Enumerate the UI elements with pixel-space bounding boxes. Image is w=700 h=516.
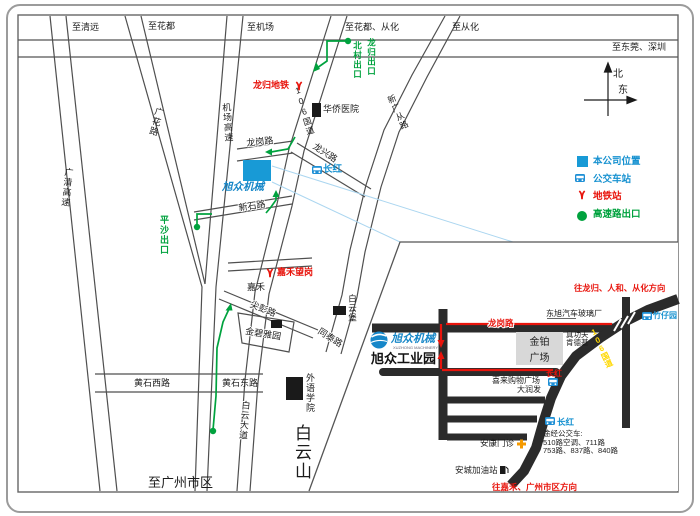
dest-qingyuan: 至清远 — [72, 23, 99, 32]
dest-guangzhou-city: 至广州市区 — [148, 476, 213, 489]
inset-darunfa: 大润发 — [517, 386, 541, 394]
building-marks — [271, 103, 346, 400]
inset-kfc: 肯德基 — [566, 339, 589, 347]
legend-icons — [575, 156, 588, 221]
compass — [584, 63, 636, 116]
location-map: { "colors": { "company_blue": "#189ad6",… — [0, 0, 700, 516]
company-name-label: 旭众机械 — [222, 182, 264, 193]
waiyu-block — [286, 377, 303, 400]
legend-metro-label: 地铁站 — [593, 192, 622, 202]
company-logo-globe — [371, 332, 388, 349]
place-waiyu-college: 外语学院 — [305, 373, 314, 413]
pingsha-exit-dot — [194, 224, 200, 230]
place-longgui-metro: 龙归地铁 — [253, 81, 289, 90]
inset-road-longgang: 龙岗路 — [488, 319, 514, 328]
legend-metro-icon — [579, 191, 584, 199]
place-changhong-stop: 长红 — [323, 165, 342, 175]
exit-longgui: 龙归出口 — [367, 38, 376, 76]
place-jiahewanggang-metro: 嘉禾望岗 — [277, 268, 313, 277]
logo-company-sub: XUZHONG MACHINERY — [393, 346, 438, 350]
place-jiahe: 嘉禾 — [247, 283, 265, 292]
changhong-bus-icon — [312, 166, 322, 174]
inset-dongxu-glass-factory: 东旭汽车玻璃厂 — [546, 310, 602, 318]
inset-jinbo-plaza: 金铂 广场 — [516, 332, 563, 365]
road-huangshi-east: 黄石东路 — [222, 379, 258, 388]
legend-company-label: 本公司位置 — [593, 157, 641, 167]
legend-exit-dot — [577, 211, 587, 221]
road-huangshi-west: 黄石西路 — [134, 379, 170, 388]
place-baiyunshan: 白云山 — [293, 424, 310, 481]
compass-north-label: 北 — [613, 70, 623, 80]
inset-wedge-lines — [272, 166, 513, 242]
place-baiyunbu: 白云堡 — [348, 294, 357, 323]
baiyunbu-block — [333, 306, 346, 315]
logo-industrial-park: 旭众工业园 — [371, 352, 436, 365]
changhong-red-bus-icon — [548, 378, 558, 386]
legend-bus-icon — [575, 174, 585, 182]
legend-bus-label: 公交车站 — [593, 175, 631, 185]
legend-company-square — [577, 156, 588, 167]
highway-exit-dot — [345, 38, 351, 44]
jiahewanggang-metro-icon — [267, 269, 272, 277]
inset-bus-routes: 途经公交车: 510路空调、711路 753路、837路、840路 — [543, 430, 618, 456]
inset-changhong-red: 长红 — [546, 370, 562, 378]
inset-direction-north: 往龙归、人和、从化方向 — [574, 284, 665, 292]
zhuzaiyuan-bus-icon — [642, 312, 652, 320]
inset-changhong-blue: 长红 — [557, 418, 574, 427]
green-route-arrows — [194, 38, 351, 434]
dest-jichang: 至机场 — [247, 23, 274, 32]
dest-conghua: 至从化 — [452, 23, 479, 32]
inset-ancheng-gas-station: 安城加油站 — [455, 466, 498, 475]
exit-pingsha: 平沙出口 — [159, 215, 168, 255]
logo-company-name: 旭众机械 — [391, 334, 435, 345]
jinbo-plaza-line2: 广场 — [530, 349, 550, 364]
exit-beicun: 北村出口 — [353, 41, 362, 79]
dest-huadu: 至花都 — [148, 22, 175, 31]
inset-zhuzaiyuan-stop: 竹仔园 — [653, 312, 677, 320]
inset-xilai-mall: 喜来购物广场 — [492, 377, 540, 385]
road-jichang-gaosu: 机场高速 — [221, 102, 233, 143]
south-exit-dot — [210, 428, 216, 434]
dest-dongguan-shenzhen: 至东莞、深圳 — [612, 43, 666, 52]
inset-ankang-clinic: 安康门诊 — [480, 439, 514, 448]
inset-map — [309, 242, 678, 491]
dest-huadu-conghua: 至花都、从化 — [345, 23, 399, 32]
hospital-block — [312, 103, 321, 117]
place-huaqiao-hospital: 华侨医院 — [323, 105, 359, 114]
jinbo-plaza-line1: 金铂 — [530, 333, 550, 348]
legend-exit-label: 高速路出口 — [593, 210, 641, 220]
compass-east-label: 东 — [618, 86, 628, 96]
jinbi-block — [271, 320, 282, 328]
changhong-blue-bus-icon — [545, 417, 555, 425]
bus-routes-line2: 753路、837路、840路 — [543, 447, 618, 456]
company-location-square — [243, 160, 271, 181]
inset-direction-south: 往嘉禾、广州市区方向 — [492, 483, 577, 492]
